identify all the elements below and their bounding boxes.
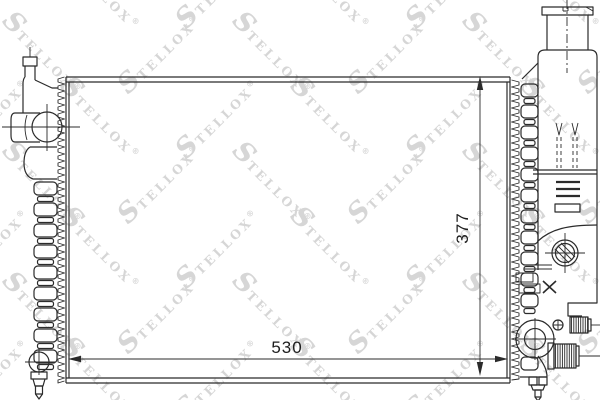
arrowhead-bottom <box>477 362 483 376</box>
left-tank-ribs <box>34 182 57 370</box>
arrowhead-top <box>477 76 483 90</box>
core-gasket-crimp-right <box>512 80 520 380</box>
mount-strut <box>522 63 538 79</box>
arrowhead-right <box>495 356 508 362</box>
outlet-port-lower <box>548 343 600 369</box>
vent-slots <box>556 123 578 168</box>
expansion-tank <box>515 0 600 400</box>
width-dimension: 530 <box>68 338 508 362</box>
cross-mark <box>543 281 556 293</box>
bleeder-pipe <box>23 47 58 113</box>
left-drain-valve <box>25 349 55 399</box>
left-tank <box>2 47 80 399</box>
height-dimension-label: 377 <box>453 212 472 243</box>
arrowhead-left <box>68 356 81 362</box>
bracket-curve <box>538 225 597 241</box>
width-dimension-label: 530 <box>271 338 302 357</box>
height-dimension: 377 <box>453 76 483 376</box>
filler-cap <box>542 7 593 15</box>
outlet-port-upper <box>553 317 600 333</box>
shelf-line <box>533 170 597 174</box>
mounting-screw <box>545 233 585 273</box>
left-tank-bulge <box>24 147 57 179</box>
filler-neck <box>547 15 588 50</box>
catalog-part-drawing: STELLOX®STELLOX®STELLOX®STELLOX®STELLOX®… <box>0 0 600 400</box>
inlet-port <box>2 104 80 151</box>
right-drain-plug <box>529 377 547 400</box>
level-marks <box>555 182 580 212</box>
radiator-diagram: 530 377 <box>0 0 600 400</box>
